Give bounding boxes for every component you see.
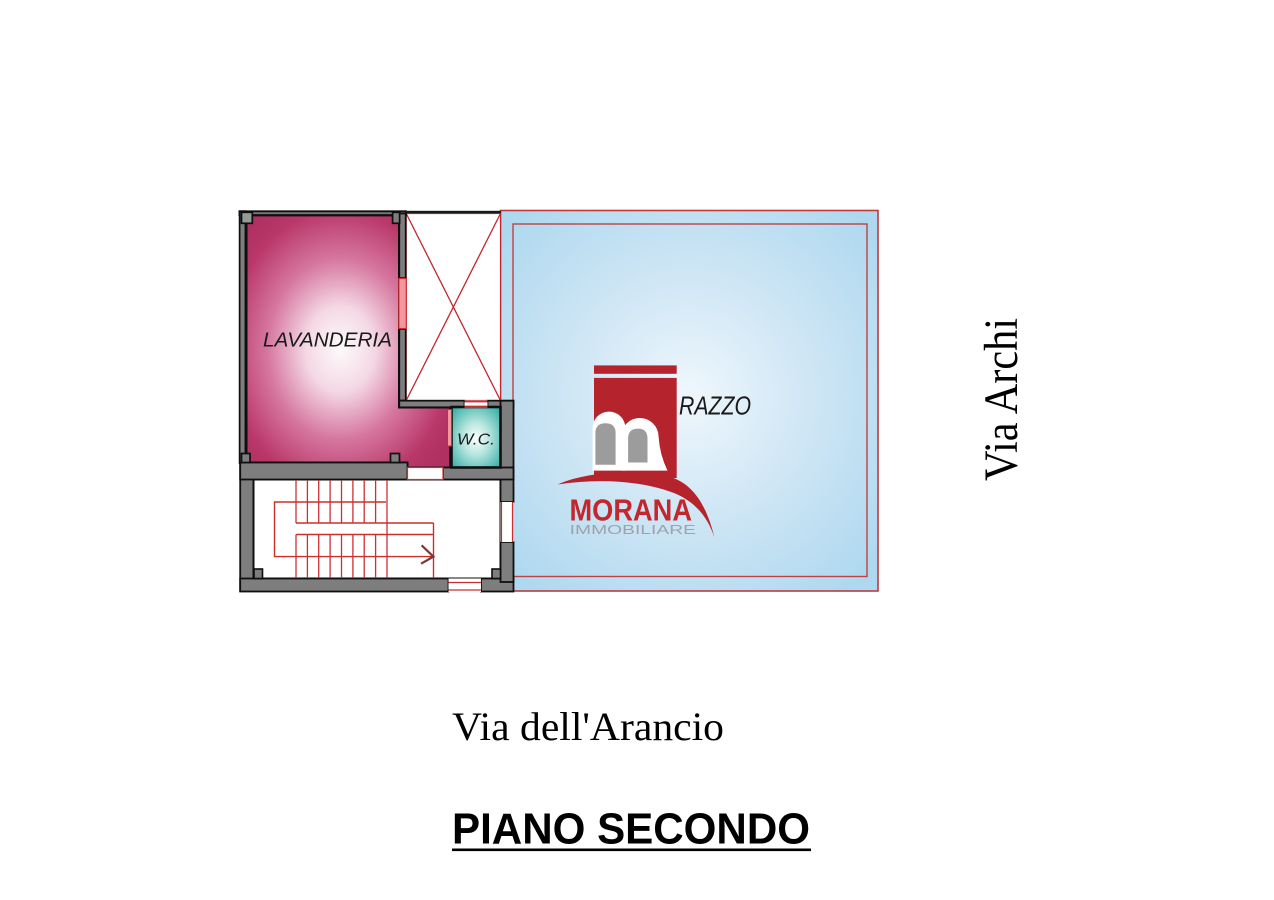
svg-text:RAZZO: RAZZO [679,393,751,421]
svg-text:PIANO SECONDO: PIANO SECONDO [452,805,810,854]
svg-text:W.C.: W.C. [457,432,495,449]
svg-text:LAVANDERIA: LAVANDERIA [263,330,392,352]
svg-text:Via dell'Arancio: Via dell'Arancio [452,704,724,749]
svg-text:Via Archi: Via Archi [975,318,1028,481]
svg-text:IMMOBILIARE: IMMOBILIARE [570,522,697,537]
